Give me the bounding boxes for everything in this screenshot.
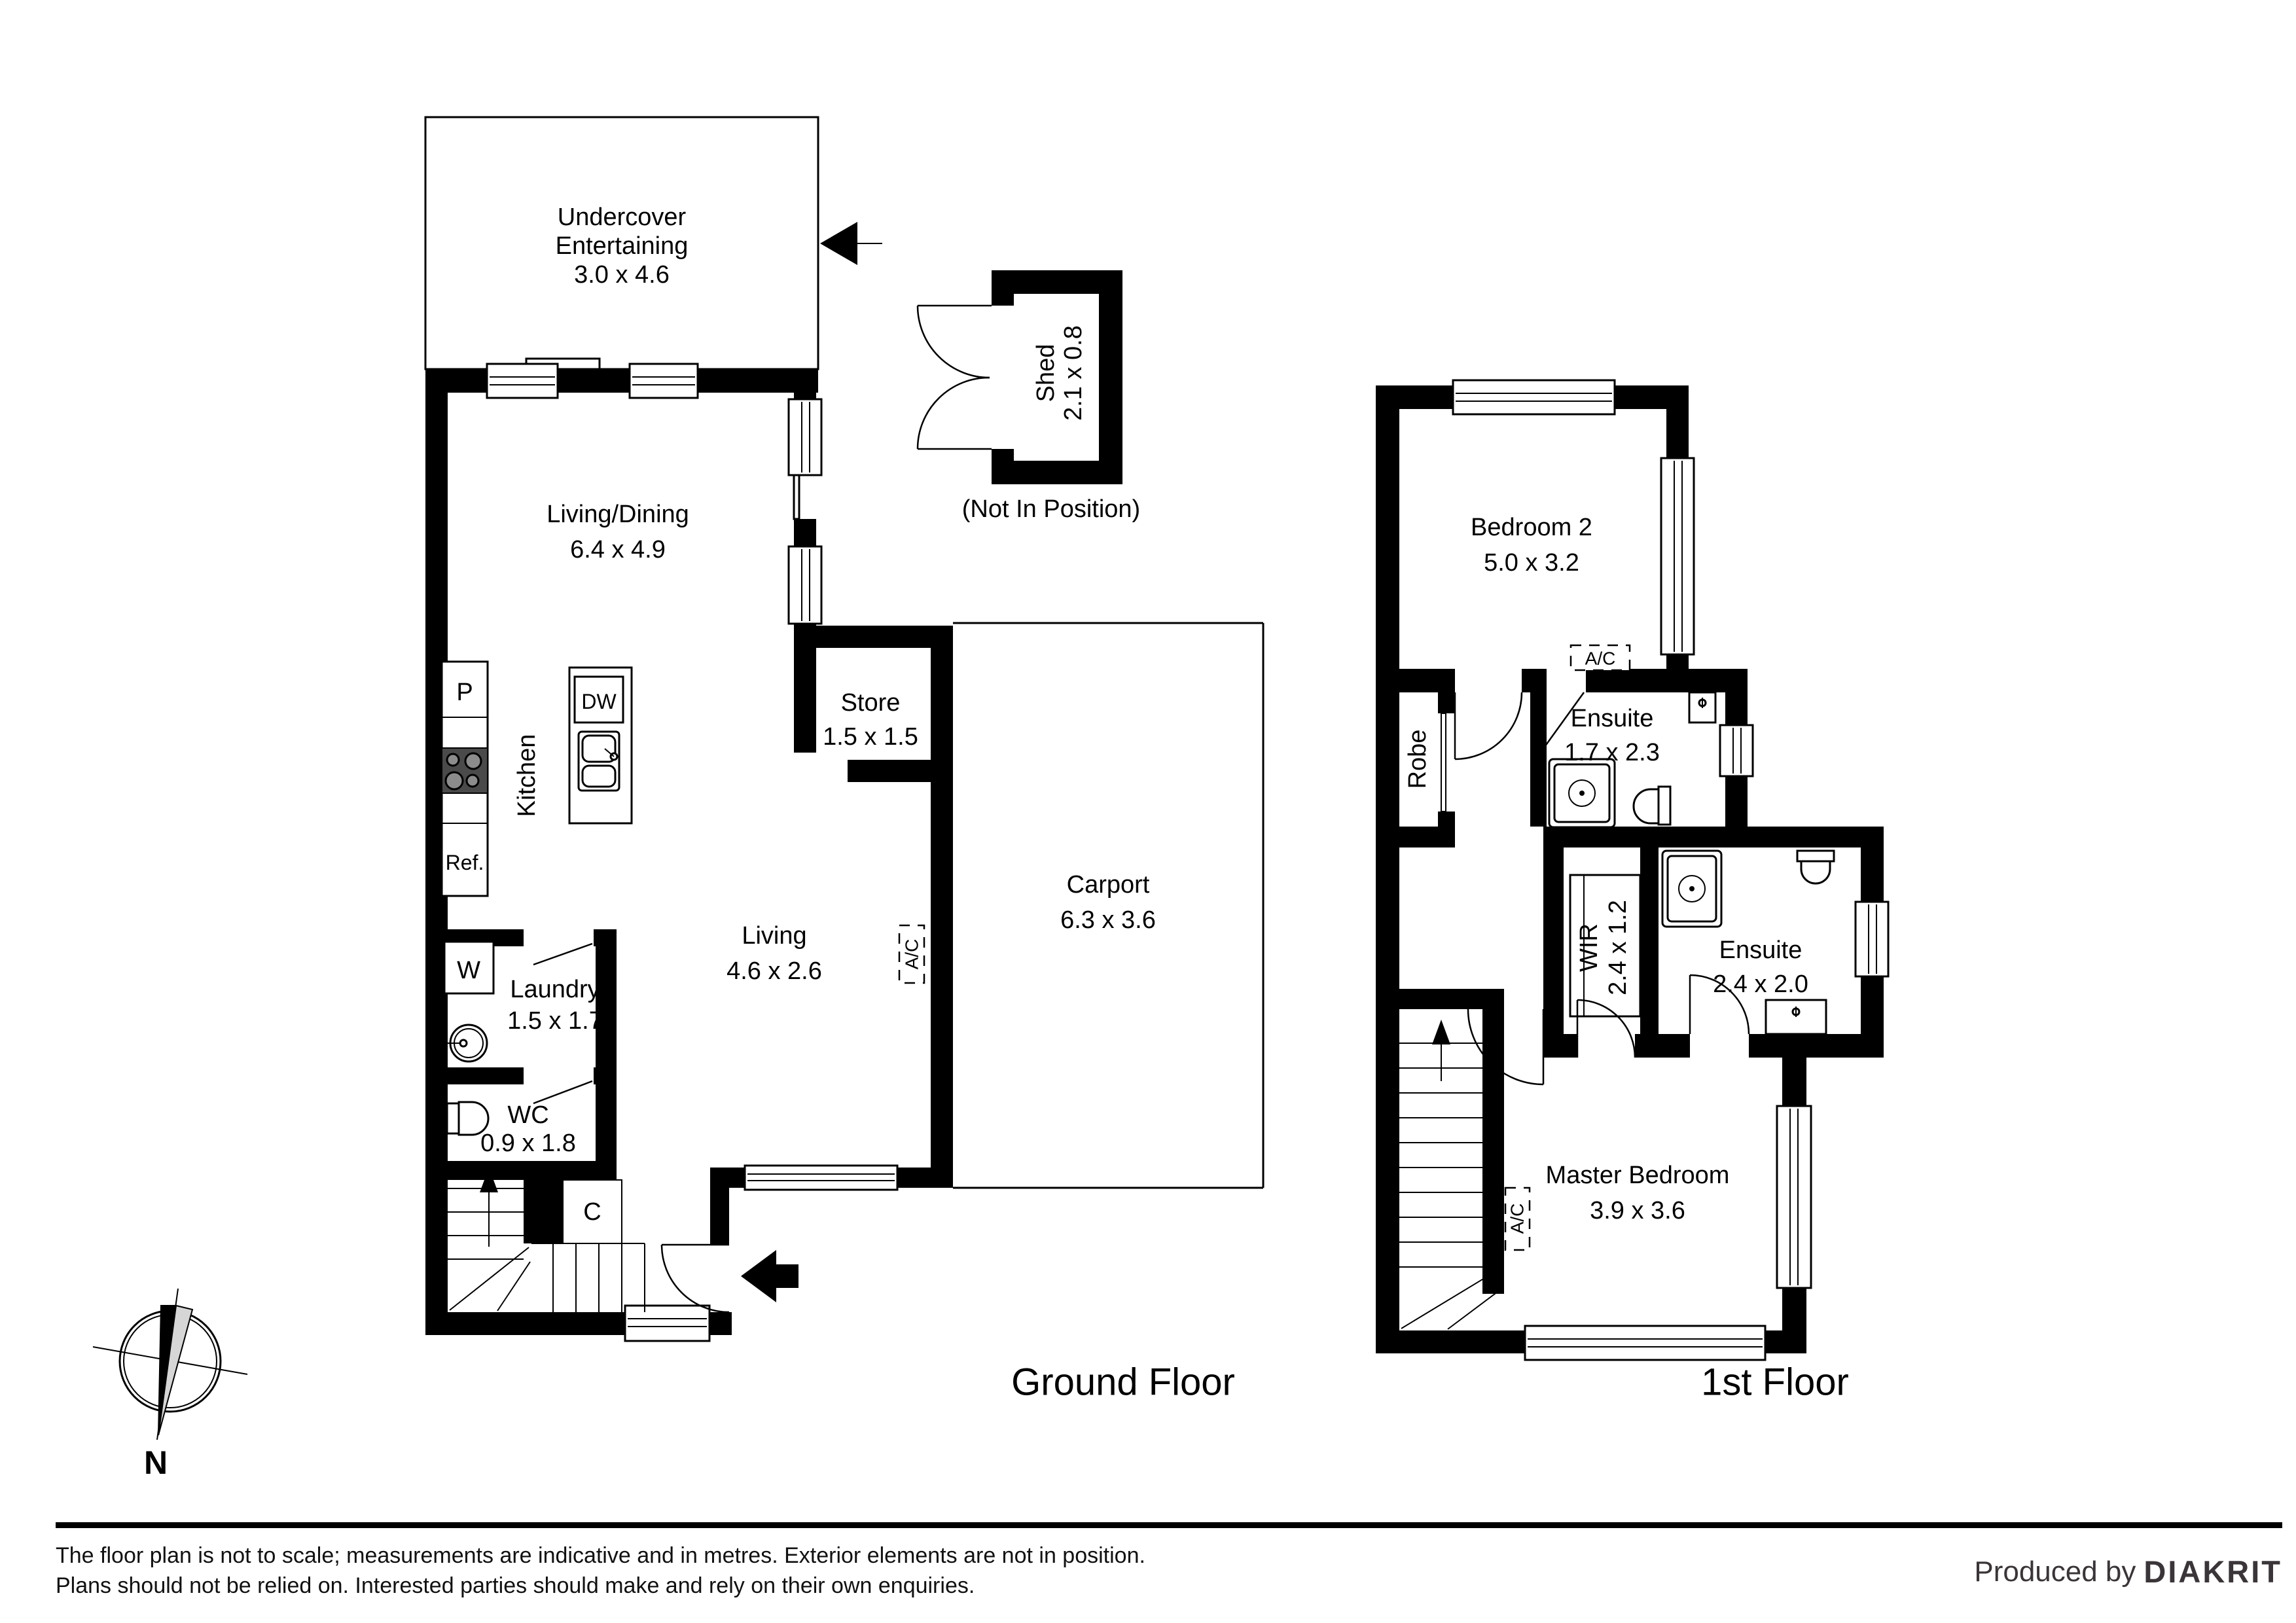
window [1525,1326,1765,1360]
first-floor-title: 1st Floor [1701,1361,1849,1404]
master-bedroom-door [1468,1009,1543,1084]
room-label-ensuite1: Ensuite [1571,705,1654,732]
ground-floor-plan: A/C Undercover Entertaining 3.0 x 4.6 Li… [425,117,1263,1404]
ensuite2-vanity [1766,1000,1826,1034]
floor-plan-canvas: A/C Undercover Entertaining 3.0 x 4.6 Li… [0,0,2296,1623]
patio-door-panel [794,475,799,519]
carport-screen [745,1166,897,1190]
entry-arrow-icon [741,1250,798,1302]
room-dims-ensuite1: 1.7 x 2.3 [1564,739,1660,766]
room-label-store: Store [841,689,901,717]
room-label-laundry: Laundry [510,976,600,1003]
ac-label: A/C [1507,1204,1528,1234]
ensuite1-toilet [1634,787,1670,825]
window [1856,902,1888,976]
room-dims-carport: 6.3 x 3.6 [1060,906,1156,934]
room-dims-ensuite2: 2.4 x 2.0 [1713,971,1808,998]
room-dims-living: 4.6 x 2.6 [726,957,822,985]
dishwasher-label: DW [581,690,617,713]
laundry-door-swing [533,944,592,965]
footer-divider [56,1522,2282,1528]
room-dims-laundry: 1.5 x 1.7 [507,1007,603,1035]
room-label-undercover-line1: Undercover [558,204,687,231]
window [789,546,821,624]
room-dims-wir: 2.4 x 1.2 [1604,900,1632,995]
window [487,364,558,398]
room-dims-undercover: 3.0 x 4.6 [574,261,670,289]
room-dims-shed: 2.1 x 0.8 [1060,325,1087,421]
room-dims-wc: 0.9 x 1.8 [480,1130,576,1157]
brand-logo-text: DIAKRIT [2144,1554,2282,1589]
window [1777,1106,1811,1288]
window [1453,380,1615,414]
ensuite2-shower [1662,851,1721,927]
wc-door-swing [533,1081,592,1103]
ac-label: A/C [1585,649,1616,669]
room-dims-master-bedroom: 3.9 x 3.6 [1590,1197,1685,1224]
room-label-living: Living [742,922,806,950]
shed [918,270,1122,484]
room-label-bedroom2: Bedroom 2 [1471,514,1592,541]
room-dims-bedroom2: 5.0 x 3.2 [1484,549,1579,577]
bedroom2-door [1455,692,1522,759]
footer: The floor plan is not to scale; measurem… [56,1522,2282,1598]
carport-outline [953,623,1263,1188]
kitchen-sink [579,732,619,791]
floor-plan-page: A/C Undercover Entertaining 3.0 x 4.6 Li… [0,0,2296,1623]
ac-label: A/C [902,939,922,970]
room-label-carport: Carport [1067,871,1150,899]
ensuite1-shower [1549,759,1615,827]
undercover-arrow-icon [820,222,882,265]
room-label-kitchen: Kitchen [513,734,541,817]
window [1720,725,1753,776]
room-label-robe: Robe [1404,730,1431,789]
room-dims-store: 1.5 x 1.5 [823,723,918,751]
closet-label: C [583,1198,601,1226]
ground-floor-title: Ground Floor [1011,1361,1235,1404]
first-floor-plan: A/C A/C Bedroom 2 5.0 x 3.2 Robe Ensuite… [1376,380,1888,1404]
window [630,364,698,398]
compass-north-label: N [144,1444,168,1481]
window [625,1306,709,1341]
ensuite2-toilet [1797,851,1834,883]
stairs-up-arrow-icon [1432,1020,1450,1044]
window [1661,458,1694,654]
room-label-master-bedroom: Master Bedroom [1546,1162,1730,1189]
room-dims-living-dining: 6.4 x 4.9 [570,536,666,563]
room-label-undercover-line2: Entertaining [556,232,689,260]
shed-note: (Not In Position) [962,495,1140,523]
room-label-living-dining: Living/Dining [547,501,689,528]
compass: N [93,1289,247,1481]
room-label-shed: Shed [1032,344,1060,402]
washer-label: W [457,957,480,984]
entry-door [662,1245,729,1312]
produced-by-text: Produced by [1974,1556,2136,1588]
room-label-wc: WC [507,1101,548,1129]
refrigerator-label: Ref. [446,851,484,874]
window [789,399,821,475]
produced-by-credit: Produced byDIAKRIT [1974,1554,2282,1589]
disclaimer-line1: The floor plan is not to scale; measurem… [56,1543,1145,1568]
room-label-wir: WIR [1575,923,1603,972]
room-label-ensuite2: Ensuite [1719,936,1803,964]
disclaimer-line2: Plans should not be relied on. Intereste… [56,1573,975,1598]
ensuite1-vanity [1689,692,1715,722]
robe-rail [1441,713,1446,811]
pantry-label: P [456,679,473,706]
